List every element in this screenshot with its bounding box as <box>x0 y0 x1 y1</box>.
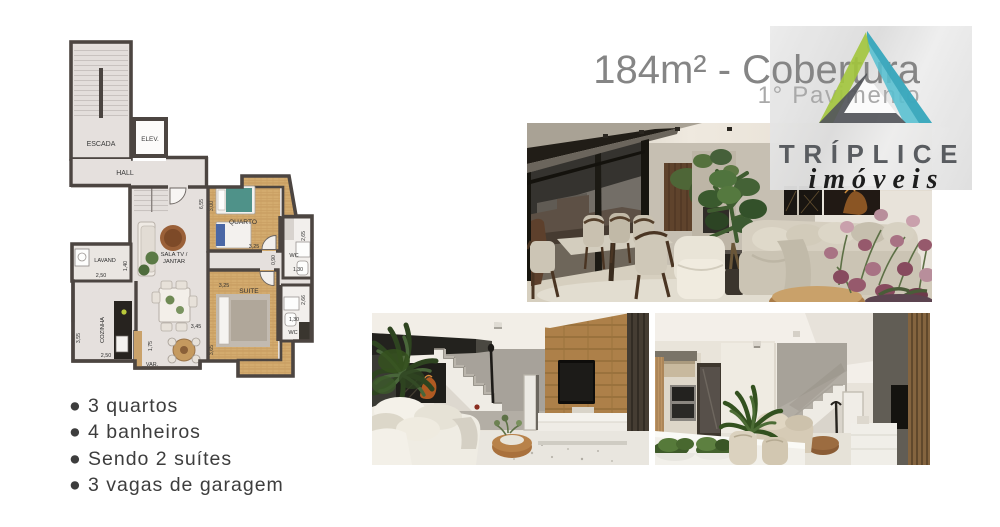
svg-text:2,50: 2,50 <box>96 273 107 279</box>
svg-text:1,30: 1,30 <box>293 267 303 273</box>
svg-text:3,00: 3,00 <box>209 201 215 211</box>
svg-text:QUARTO: QUARTO <box>229 219 257 226</box>
svg-text:SUITE: SUITE <box>239 288 259 295</box>
svg-text:1,40: 1,40 <box>123 261 129 271</box>
svg-text:2,66: 2,66 <box>301 295 307 305</box>
svg-text:SALA TV /: SALA TV / <box>161 252 188 258</box>
svg-text:3,55: 3,55 <box>76 333 82 343</box>
svg-text:WC: WC <box>289 253 298 259</box>
svg-text:3,45: 3,45 <box>191 324 202 330</box>
svg-text:1,75: 1,75 <box>148 341 154 351</box>
svg-text:3,65: 3,65 <box>209 345 215 355</box>
svg-text:WC: WC <box>288 330 297 336</box>
svg-text:3,25: 3,25 <box>249 244 260 250</box>
svg-text:2,65: 2,65 <box>301 231 307 241</box>
svg-text:0,90: 0,90 <box>271 255 277 265</box>
svg-text:1,30: 1,30 <box>289 317 299 323</box>
svg-text:COZINHA: COZINHA <box>100 317 106 343</box>
svg-text:3,25: 3,25 <box>219 283 230 289</box>
svg-text:ESCADA: ESCADA <box>87 141 116 148</box>
svg-text:6,55: 6,55 <box>199 199 205 209</box>
svg-text:2,50: 2,50 <box>101 353 112 359</box>
svg-text:HALL: HALL <box>116 170 134 177</box>
svg-text:ELEV.: ELEV. <box>141 136 159 143</box>
svg-text:JANTAR: JANTAR <box>163 259 185 265</box>
svg-text:LAVAND: LAVAND <box>94 258 116 264</box>
